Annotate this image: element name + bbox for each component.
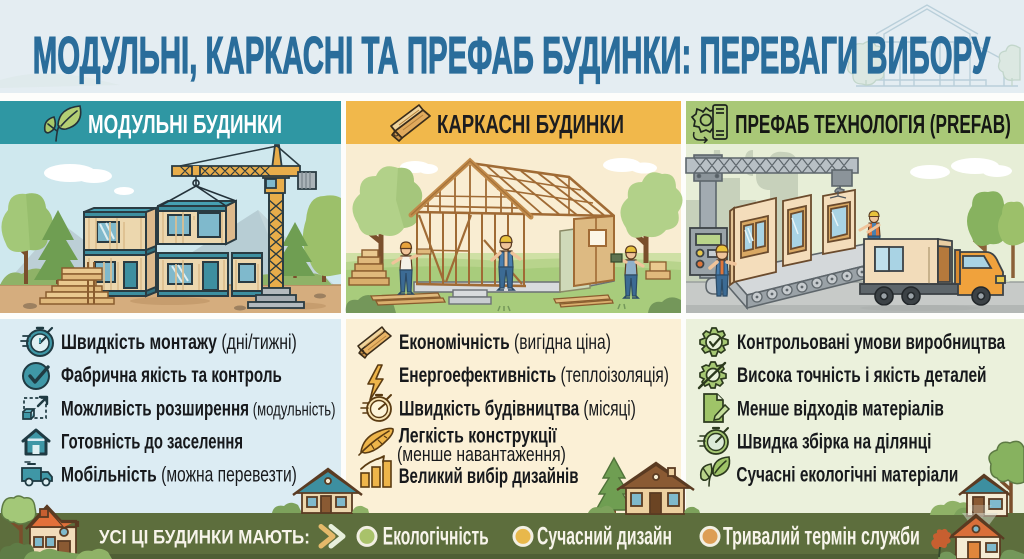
svg-text:КАРКАСНІ БУДИНКИ: КАРКАСНІ БУДИНКИ: [437, 110, 624, 139]
svg-text:Готовність до заселення: Готовність до заселення: [61, 429, 243, 453]
svg-text:Швидкість монтажу (дні/тижні): Швидкість монтажу (дні/тижні): [61, 331, 297, 355]
svg-text:Економічність (вигідна ціна): Економічність (вигідна ціна): [399, 330, 611, 354]
svg-text:УСІ ЦІ БУДИНКИ МАЮТЬ:: УСІ ЦІ БУДИНКИ МАЮТЬ:: [99, 525, 310, 547]
svg-text:Тривалий термін служби: Тривалий термін служби: [723, 523, 920, 550]
svg-text:Менше відходів матеріалів: Менше відходів матеріалів: [737, 396, 944, 420]
svg-text:Висока точність і якість детал: Висока точність і якість деталей: [737, 362, 987, 386]
svg-text:Енергоефективність (теплоізоля: Енергоефективність (теплоізоляція): [399, 362, 669, 386]
svg-text:Сучасний дизайн: Сучасний дизайн: [537, 523, 672, 551]
svg-text:Можливість розширення (модульн: Можливість розширення (модульність): [61, 396, 336, 420]
svg-text:ПРЕФАБ ТЕХНОЛОГІЯ (PREFAB): ПРЕФАБ ТЕХНОЛОГІЯ (PREFAB): [735, 110, 1011, 139]
svg-text:Великий вибір дизайнів: Великий вибір дизайнів: [399, 463, 579, 487]
svg-text:Екологічність: Екологічність: [383, 523, 489, 551]
svg-text:МОДУЛЬНІ БУДИНКИ: МОДУЛЬНІ БУДИНКИ: [88, 110, 282, 139]
svg-text:Мобільність (можна перевезти): Мобільність (можна перевезти): [61, 462, 297, 486]
svg-text:Швидкість будівництва (місяці): Швидкість будівництва (місяці): [399, 396, 636, 420]
svg-text:МОДУЛЬНІ, КАРКАСНІ ТА ПРЕФАБ Б: МОДУЛЬНІ, КАРКАСНІ ТА ПРЕФАБ БУДИНКИ: ПЕ…: [33, 26, 991, 84]
svg-text:Фабрична якість та контроль: Фабрична якість та контроль: [61, 362, 282, 386]
svg-text:Контрольовані умови виробництв: Контрольовані умови виробництва: [737, 329, 1006, 353]
svg-text:Сучасні екологічні матеріали: Сучасні екологічні матеріали: [736, 462, 958, 486]
svg-text:Швидка збірка на ділянці: Швидка збірка на ділянці: [737, 429, 931, 453]
